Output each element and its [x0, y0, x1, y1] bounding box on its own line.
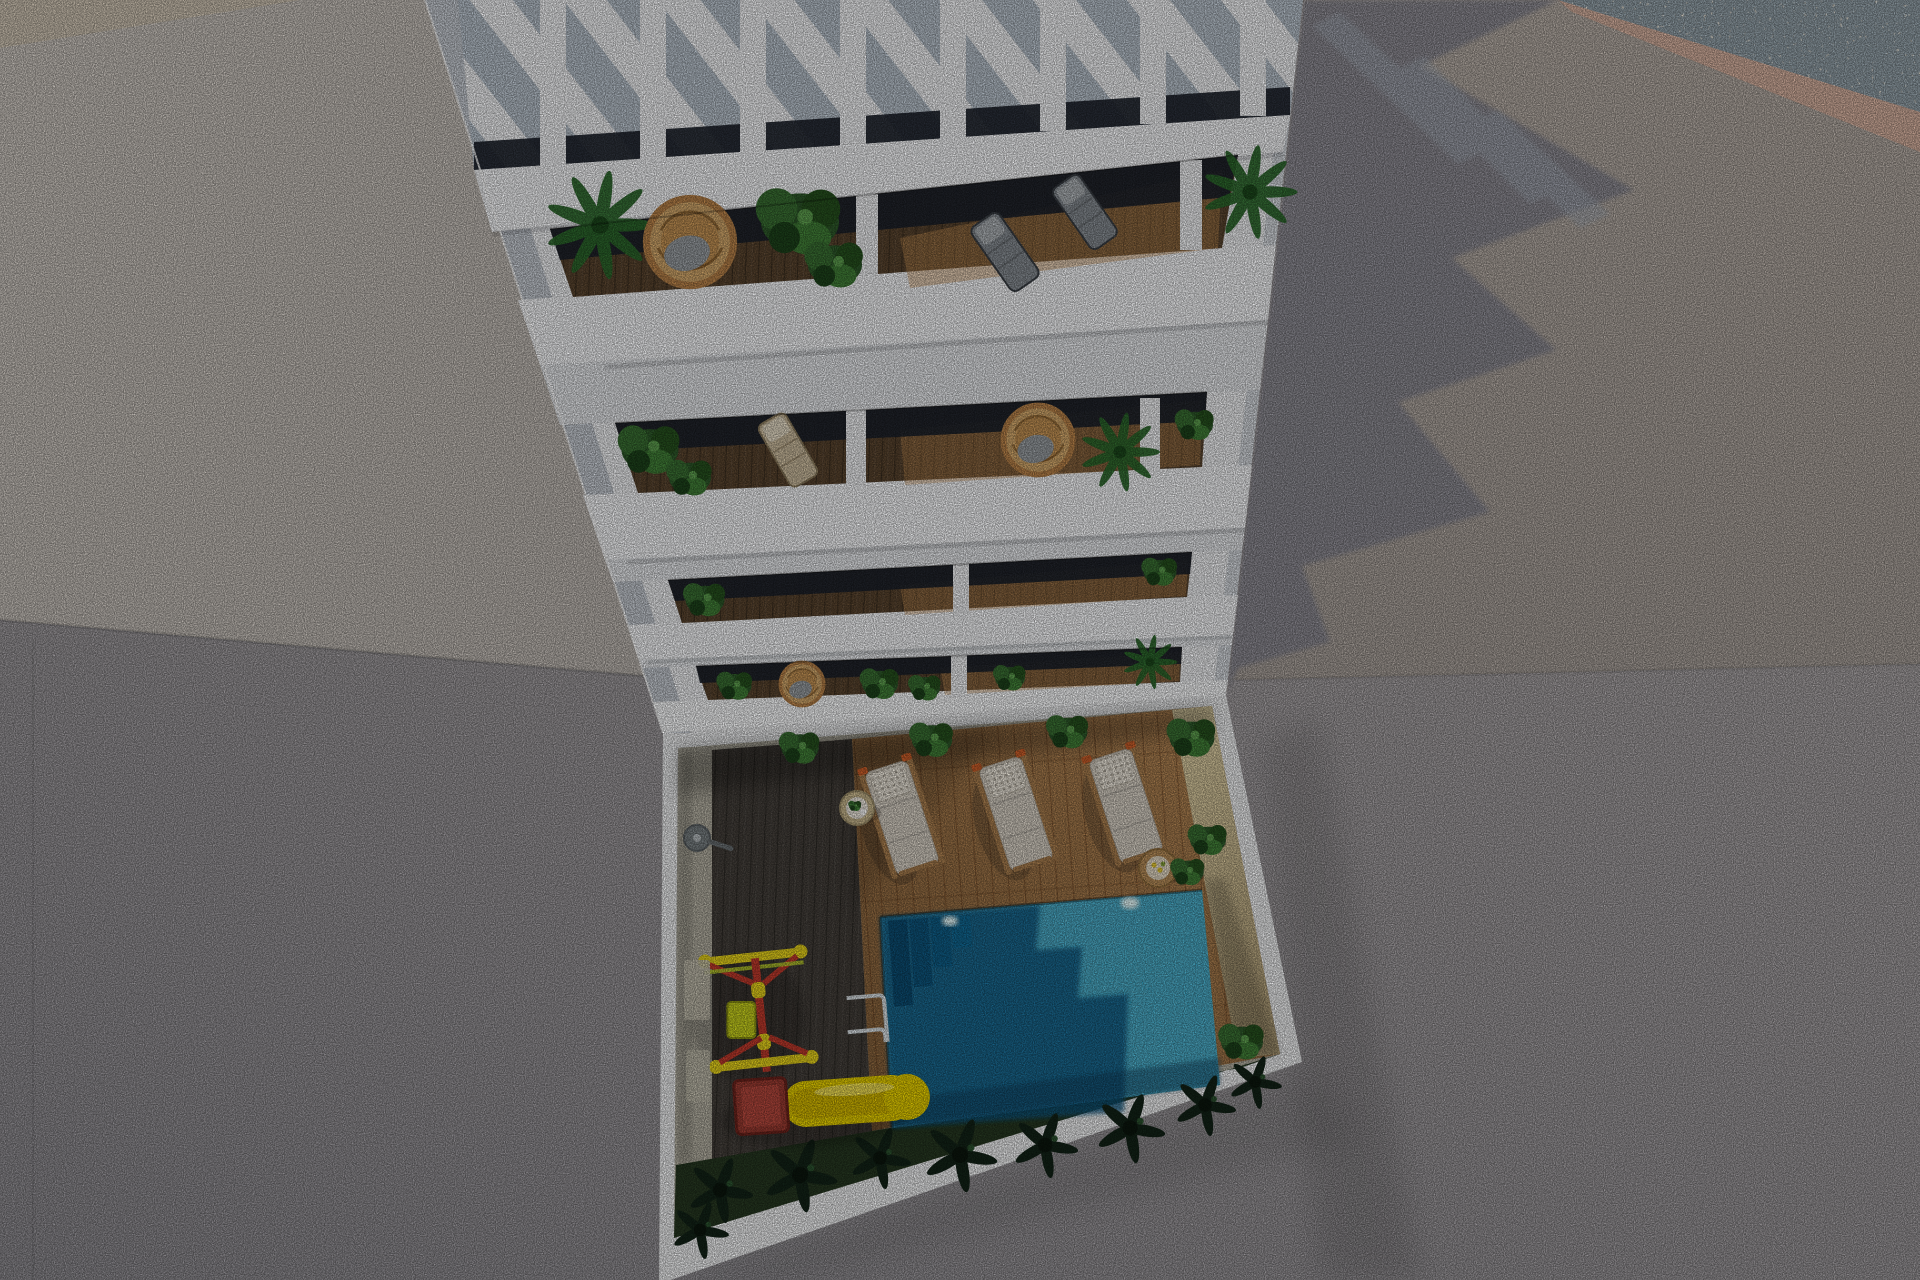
scene: Aerial 3D architectural render: [0, 0, 1920, 1280]
film-grain: [0, 0, 1920, 1280]
aerial-render: Aerial 3D architectural render: [0, 0, 1920, 1280]
